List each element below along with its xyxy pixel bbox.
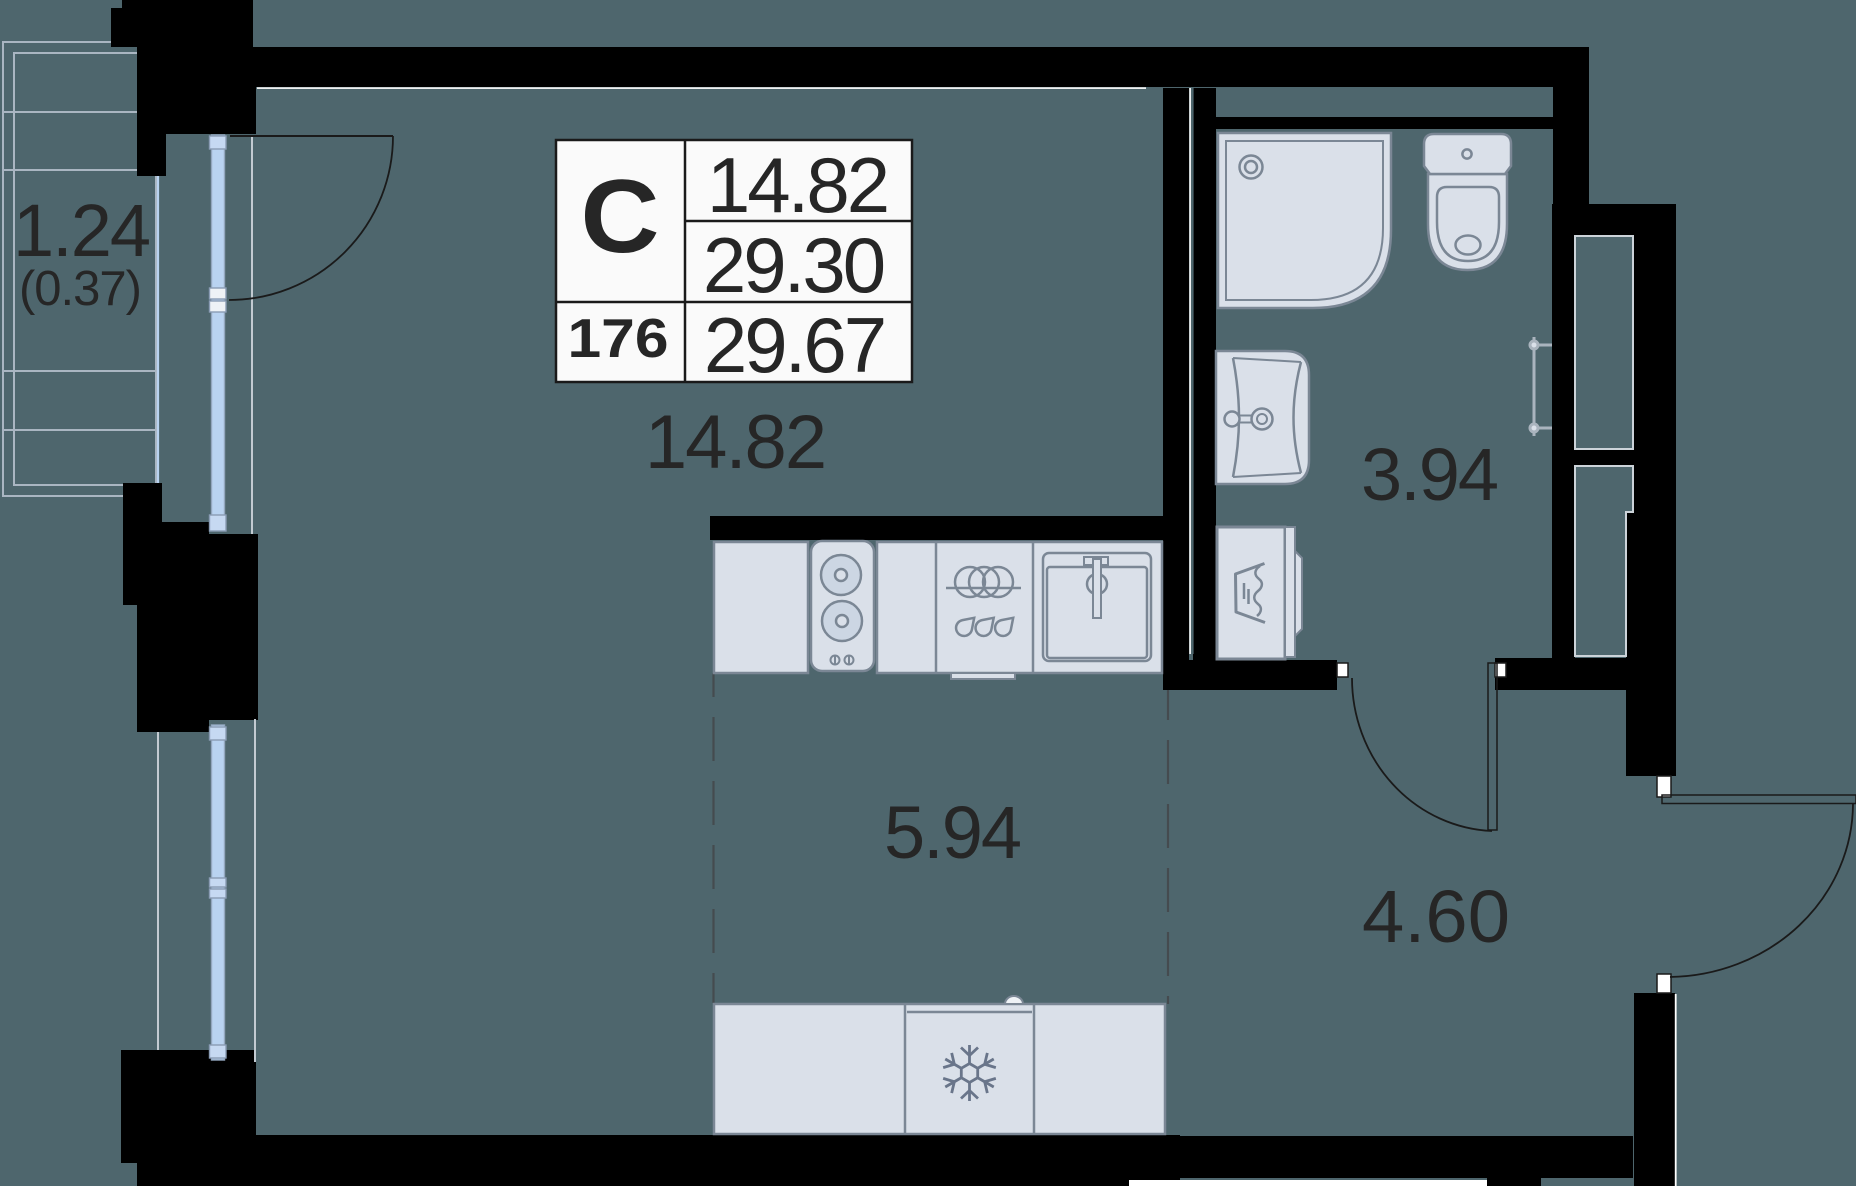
svg-text:176: 176 xyxy=(568,307,669,369)
svg-text:4.60: 4.60 xyxy=(1362,875,1510,958)
svg-text:С: С xyxy=(581,159,660,275)
svg-text:14.82: 14.82 xyxy=(645,400,825,485)
svg-text:3.94: 3.94 xyxy=(1361,433,1497,516)
svg-text:(0.37): (0.37) xyxy=(19,262,141,316)
svg-text:14.82: 14.82 xyxy=(707,141,887,229)
svg-text:5.94: 5.94 xyxy=(884,791,1020,874)
svg-text:29.30: 29.30 xyxy=(703,221,884,309)
svg-text:1.24: 1.24 xyxy=(13,189,149,272)
svg-text:29.67: 29.67 xyxy=(704,301,884,389)
